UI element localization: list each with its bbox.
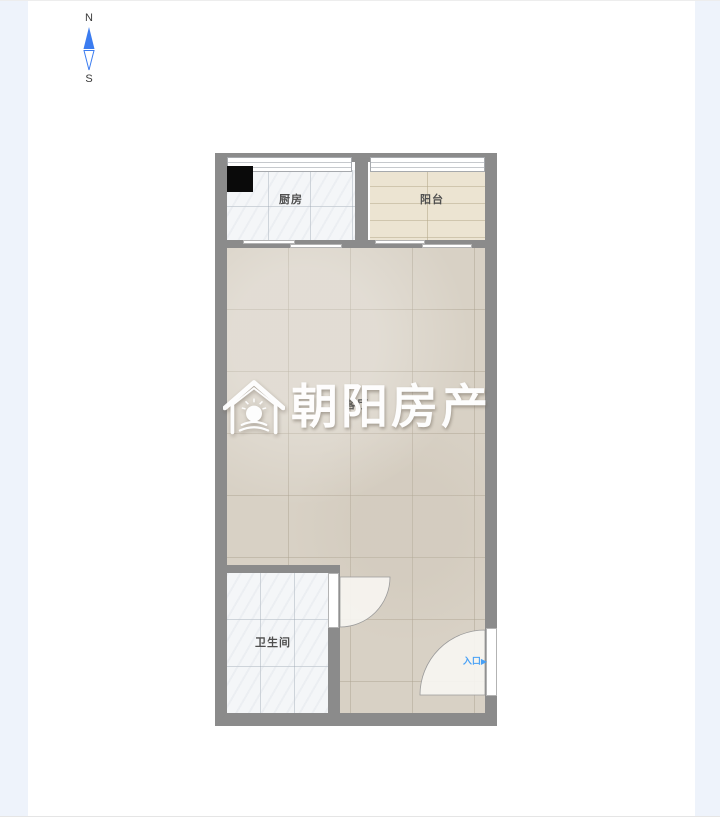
compass: N S	[75, 12, 103, 86]
balcony-label: 阳台	[420, 191, 444, 207]
living-room-label: 客厅	[345, 396, 369, 412]
page-left-margin	[0, 0, 28, 817]
entrance-arrow-icon: ▶	[481, 657, 487, 666]
stove-block	[227, 166, 253, 192]
entrance-text: 入口	[463, 656, 481, 666]
entrance-door-leaf	[486, 628, 497, 696]
wall-bottom	[215, 713, 497, 726]
kitchen-sliding-door-panel	[243, 240, 295, 244]
bathroom-label: 卫生间	[255, 634, 291, 650]
entrance-label: 入口▶	[452, 654, 487, 667]
compass-needle-icon	[80, 26, 98, 72]
wall-kitchen-balcony-pillar	[352, 153, 370, 162]
bathroom-door-leaf	[328, 573, 339, 628]
page-right-margin	[695, 0, 720, 817]
compass-north-label: N	[75, 12, 103, 25]
balcony-sliding-door-panel	[422, 244, 472, 248]
wall-bathroom-top	[215, 565, 340, 573]
wall-left	[215, 153, 227, 726]
balcony-sliding-door-panel	[375, 240, 425, 244]
page-top-border	[0, 0, 720, 1]
floorplan: 厨房 阳台 客厅 卫生间 入口▶ 朝阳房产	[215, 153, 497, 726]
wall-kitchen-balcony	[355, 162, 368, 248]
compass-south-label: S	[75, 73, 103, 86]
kitchen-sliding-door-panel	[290, 244, 342, 248]
kitchen-label: 厨房	[279, 191, 303, 207]
balcony-top-window	[370, 157, 485, 172]
